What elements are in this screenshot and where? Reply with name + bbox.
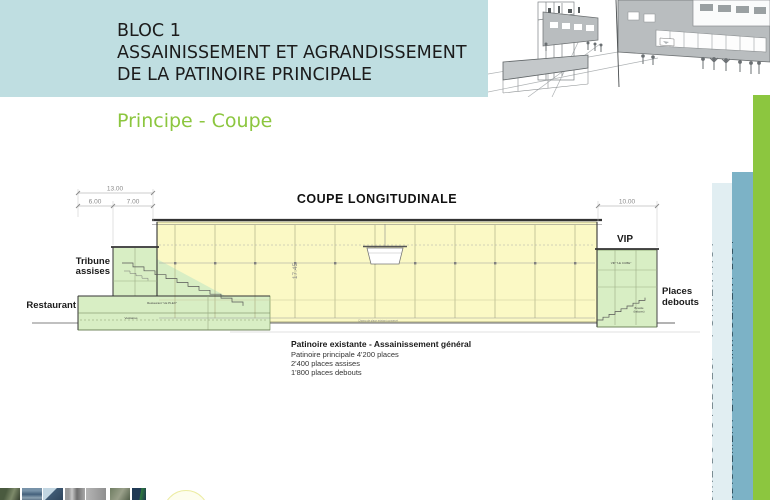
side-banner-project-name: OIRE DU VOYEBOEUF - PORRENTRUY — [712, 183, 732, 500]
room-vestiaires: Vestiaires — [124, 316, 138, 320]
photo-thumbnail — [43, 488, 63, 500]
label-places-2: debouts — [662, 297, 699, 308]
slide-subtitle: Principe - Coupe — [117, 110, 272, 132]
title-line-3: DE LA PATINOIRE PRINCIPALE — [117, 64, 467, 86]
room-buvette-2: (balcons) — [633, 310, 644, 314]
photo-thumbnail — [132, 488, 147, 500]
room-vip-cube: VIP "LE CUBE" — [611, 261, 632, 265]
banner-text-project-name: OIRE DU VOYEBOEUF - PORRENTRUY — [712, 239, 716, 500]
photo-thumbnail — [22, 488, 42, 500]
dim-6: 6.00 — [89, 199, 102, 206]
caption-line-2: 2'400 places assises — [291, 359, 360, 368]
banner-text-users-2014: T 2014 DES UTILISATEURS — [753, 377, 756, 500]
dim-13: 13.00 — [107, 186, 124, 193]
dim-7: 7.00 — [127, 199, 140, 206]
scoreboard-cube — [367, 248, 403, 264]
slide-title: BLOC 1 ASSAINISSEMENT ET AGRANDISSEMENT … — [117, 20, 467, 86]
caption-line-1: Patinoire principale 4'200 places — [291, 350, 399, 359]
label-vip: VIP — [617, 234, 633, 245]
logo-circle — [163, 490, 209, 500]
note-ice-field: Champ de glace existant conservé — [358, 319, 398, 323]
dim-10: 10.00 — [619, 199, 636, 206]
banner-text-project-phase: NDISSEMENT ET ASSAINISSEMENT 2014 — [732, 240, 736, 500]
dim-height: 17.45 — [292, 262, 299, 279]
photo-thumbnail — [65, 488, 85, 500]
architectural-sketch — [488, 0, 770, 97]
photo-thumbnail — [110, 488, 130, 500]
room-restaurant: Restaurant "LE PLEX" — [147, 301, 177, 305]
side-banner-users-2014: T 2014 DES UTILISATEURS — [753, 95, 770, 500]
section-drawing: 13.00 6.00 7.00 10.00 17.45 COUPE LONGIT… — [0, 175, 710, 390]
label-restaurant: Restaurant — [26, 300, 76, 311]
slide-page: BLOC 1 ASSAINISSEMENT ET AGRANDISSEMENT … — [0, 0, 770, 500]
caption-line-3: 1'800 places debouts — [291, 368, 362, 377]
block-label: BLOC 1 — [117, 20, 467, 42]
photo-thumbnail — [0, 488, 20, 500]
side-banner-project-phase: NDISSEMENT ET ASSAINISSEMENT 2014 — [732, 172, 753, 500]
caption-title: Patinoire existante - Assainissement gén… — [291, 339, 471, 349]
photo-thumbnail — [86, 488, 106, 500]
label-tribune-2: assises — [76, 266, 110, 277]
title-line-2: ASSAINISSEMENT ET AGRANDISSEMENT — [117, 42, 467, 64]
drawing-title: COUPE LONGITUDINALE — [297, 192, 457, 206]
label-places-1: Places — [662, 286, 692, 297]
room-buvette-1: Buvette — [634, 306, 644, 310]
